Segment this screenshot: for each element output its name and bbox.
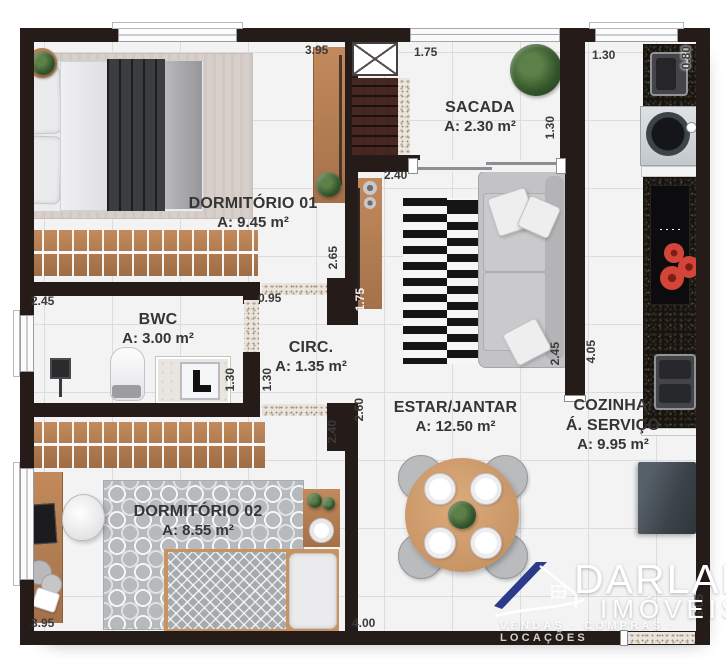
dimension-label: 4.05 [584, 340, 598, 363]
room-area: A: 9.95 m² [552, 436, 674, 455]
door-jamb [408, 158, 418, 174]
brick-feature-wall [352, 78, 398, 155]
granite-strip [398, 78, 410, 155]
room-area: A: 2.30 m² [410, 118, 550, 137]
bed-blanket [165, 61, 202, 209]
room-name: ESTAR/JANTAR [368, 398, 543, 418]
dimension-label: 0.95 [258, 291, 281, 305]
burner-icon [660, 266, 684, 290]
desk-chair [62, 494, 105, 541]
dimension-label: 0.80 [679, 46, 693, 69]
window [20, 468, 34, 580]
dimension-label: 2.45 [548, 342, 562, 365]
bed-crosshatch-blanket [168, 552, 286, 629]
balcony-railing [410, 28, 560, 42]
room-label-estar-jantar: ESTAR/JANTAR A: 12.50 m² [368, 398, 543, 437]
fridge [638, 462, 696, 534]
door-threshold [262, 404, 327, 416]
wall [696, 28, 710, 645]
room-name: CIRC. [250, 338, 372, 358]
dimension-label: 2.45 [31, 294, 54, 308]
bed-throw-blanket [107, 59, 165, 211]
plate [424, 527, 456, 559]
plate [470, 527, 502, 559]
window [20, 315, 34, 372]
realtor-logo [494, 556, 586, 626]
room-name-line2: Á. SERVIÇO [552, 416, 674, 436]
dimension-label: 2.40 [325, 420, 339, 443]
room-name: BWC [98, 310, 218, 330]
wall [560, 28, 585, 165]
centerpiece-plant-icon [448, 501, 476, 529]
dimension-label: 1.75 [353, 288, 367, 311]
dimension-label: 1.75 [414, 45, 437, 59]
wall [565, 165, 585, 395]
window-sill [13, 310, 20, 377]
dimension-label: 2.60 [352, 398, 366, 421]
speaker-icon [364, 197, 376, 209]
house-icon [494, 556, 586, 626]
window-sill [112, 22, 243, 29]
room-label-dormitorio-01: DORMITÓRIO 01 A: 9.45 m² [153, 194, 353, 233]
room-area: A: 3.00 m² [98, 330, 218, 349]
pedestal-sink [50, 358, 71, 379]
dimension-label: 3.95 [31, 616, 54, 630]
dimension-label: 1.30 [543, 116, 557, 139]
plant-icon [322, 497, 335, 510]
room-area: A: 12.50 m² [368, 418, 543, 437]
bedroom2-wardrobe [27, 422, 265, 468]
door-jamb [556, 158, 566, 174]
room-label-cozinha: COZINHA/ Á. SERVIÇO A: 9.95 m² [552, 396, 674, 455]
balcony-plant-icon [510, 44, 562, 96]
room-area: A: 8.55 m² [103, 522, 293, 541]
dimension-label: 2.65 [326, 246, 340, 269]
dimension-label: 2.40 [384, 168, 407, 182]
wall [345, 422, 358, 631]
dimension-label: 1.30 [223, 368, 237, 391]
room-label-sacada: SACADA A: 2.30 m² [410, 98, 550, 137]
wall [345, 28, 410, 42]
window [118, 28, 237, 42]
window [595, 28, 678, 42]
desk-edge [339, 55, 342, 185]
striped-rug-half [403, 198, 447, 364]
speaker-icon [363, 181, 377, 195]
dimension-label: 3.95 [305, 43, 328, 57]
room-name: COZINHA/ [552, 396, 674, 416]
dimension-label: 4.00 [352, 616, 375, 630]
toilet-tank [112, 385, 141, 398]
tray [309, 518, 334, 543]
bedroom1-wardrobe [27, 230, 258, 276]
duct-shaft [352, 42, 398, 76]
shower-fixture-icon [193, 385, 211, 392]
dimension-label: 1.30 [592, 48, 615, 62]
wall [27, 403, 260, 417]
room-name: DORMITÓRIO 02 [103, 502, 293, 522]
floor-plan: DORMITÓRIO 01 A: 9.45 m² SACADA A: 2.30 … [0, 0, 726, 659]
wall [20, 282, 260, 296]
sink-stem [59, 379, 62, 397]
sliding-door-panel [417, 167, 492, 170]
plant-icon [31, 51, 55, 75]
brand-tagline: VENDAS · COMPRAS · LOCAÇÕES [500, 620, 726, 644]
sink-basin [656, 58, 676, 90]
bed-pillow [289, 553, 337, 629]
dimension-label: 1.30 [260, 368, 274, 391]
plate [470, 473, 502, 505]
cooktop-controls [658, 228, 682, 231]
room-area: A: 9.45 m² [153, 214, 353, 233]
sink-basin [659, 360, 691, 379]
room-name: SACADA [410, 98, 550, 118]
counter-divider [641, 166, 698, 177]
room-name: DORMITÓRIO 01 [153, 194, 353, 214]
room-label-bwc: BWC A: 3.00 m² [98, 310, 218, 349]
plate [424, 473, 456, 505]
washing-machine-door [646, 112, 690, 156]
sliding-door-panel [486, 162, 561, 165]
window-sill [13, 462, 20, 586]
room-label-dormitorio-02: DORMITÓRIO 02 A: 8.55 m² [103, 502, 293, 541]
plant-icon [307, 493, 322, 508]
apartment-plan: DORMITÓRIO 01 A: 9.45 m² SACADA A: 2.30 … [0, 0, 726, 659]
bed-duvet [60, 61, 109, 211]
shower-tray [180, 362, 220, 400]
window-sill [589, 22, 684, 29]
